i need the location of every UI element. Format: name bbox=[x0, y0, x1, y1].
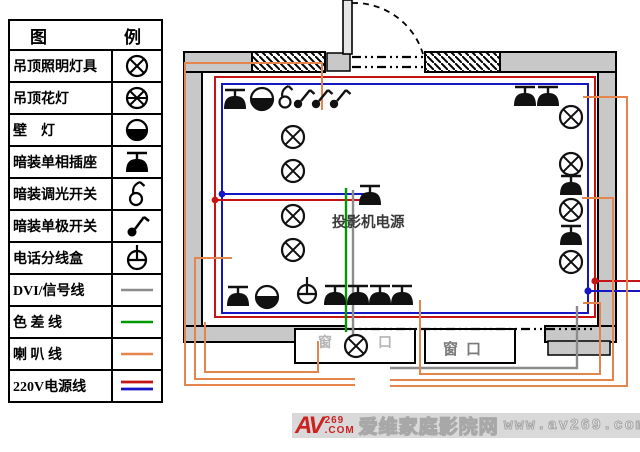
legend-row: 220V电源线 bbox=[10, 369, 161, 401]
legend-label: 暗装单极开关 bbox=[10, 211, 113, 241]
legend-label: DVI/信号线 bbox=[10, 275, 113, 305]
ceiling-lamp-icon bbox=[282, 160, 304, 182]
door-swing-arc bbox=[352, 3, 423, 54]
socket-icon bbox=[224, 90, 246, 109]
ceiling-lamp-icon bbox=[282, 205, 304, 227]
socket-icon bbox=[514, 87, 536, 106]
socket-icon bbox=[560, 176, 582, 195]
legend-row: 色 差 线 bbox=[10, 305, 161, 337]
ceiling-lamp-icon bbox=[113, 51, 161, 81]
wiring-diagram-page: 投影机电源 窗 口 窗口 图 例 吊顶照明灯具 吊顶花灯 壁 灯 暗装单相插座 bbox=[0, 0, 640, 452]
flush-dimmer-switch-icon bbox=[113, 179, 161, 209]
legend-label: 220V电源线 bbox=[10, 371, 113, 401]
watermark-site-url: www.av269.com bbox=[504, 417, 640, 434]
dimmer-switch-icon bbox=[280, 86, 293, 108]
legend-title-right: 例 bbox=[124, 23, 141, 48]
single-pole-switch-icon bbox=[330, 90, 351, 108]
socket-icon bbox=[347, 286, 369, 305]
watermark-logo-av: AV bbox=[295, 415, 323, 437]
wall-lamp-icon bbox=[256, 286, 278, 308]
left-window-char-left: 窗 bbox=[318, 334, 332, 351]
legend-label: 电话分线盒 bbox=[10, 243, 113, 273]
220v-power-line-swatch bbox=[113, 371, 161, 401]
watermark-logo-num: 269 bbox=[325, 416, 355, 426]
socket-icon bbox=[537, 87, 559, 106]
legend-row: 暗装单相插座 bbox=[10, 145, 161, 177]
projector-power-socket-icon bbox=[359, 186, 381, 205]
watermark-bar: AV 269 .COM 爱维家庭影院网 www.av269.com bbox=[292, 413, 640, 438]
legend-label: 壁 灯 bbox=[10, 115, 113, 145]
socket-icon bbox=[227, 287, 249, 306]
speaker-line-swatch bbox=[113, 339, 161, 369]
legend-row: DVI/信号线 bbox=[10, 273, 161, 305]
door-hinge-block bbox=[327, 53, 350, 71]
socket-icon bbox=[369, 286, 391, 305]
wall-lamp-icon bbox=[113, 115, 161, 145]
ceiling-lamp-icon bbox=[560, 153, 582, 175]
ceiling-lamp-icon bbox=[560, 199, 582, 221]
projector-power-label: 投影机电源 bbox=[332, 213, 405, 231]
legend-row: 吊顶照明灯具 bbox=[10, 49, 161, 81]
legend-title: 图 例 bbox=[10, 21, 161, 49]
socket-icon bbox=[324, 286, 346, 305]
legend-row: 暗装调光开关 bbox=[10, 177, 161, 209]
legend-row: 壁 灯 bbox=[10, 113, 161, 145]
legend-table: 图 例 吊顶照明灯具 吊顶花灯 壁 灯 暗装单相插座 暗装调光开关 bbox=[8, 19, 163, 403]
ceiling-lamp-icon bbox=[560, 251, 582, 273]
telephone-junction-box-icon bbox=[298, 277, 316, 303]
ceiling-lamp-icon bbox=[282, 239, 304, 261]
ceiling-lamp-icon bbox=[282, 126, 304, 148]
chandelier-icon bbox=[113, 83, 161, 113]
legend-label: 吊顶花灯 bbox=[10, 83, 113, 113]
legend-label: 暗装调光开关 bbox=[10, 179, 113, 209]
right-window-label: 窗口 bbox=[443, 340, 489, 358]
component-video-line-swatch bbox=[113, 307, 161, 337]
watermark-logo-com: .COM bbox=[325, 426, 355, 436]
ceiling-lamp-icon bbox=[560, 106, 582, 128]
telephone-junction-box-icon bbox=[113, 243, 161, 273]
wall-lamp-icon bbox=[251, 88, 273, 110]
legend-row: 电话分线盒 bbox=[10, 241, 161, 273]
watermark-logo-stack: 269 .COM bbox=[325, 416, 355, 436]
door-opening-dashdot bbox=[352, 57, 425, 67]
door-panel bbox=[343, 0, 352, 54]
left-window-char-right: 口 bbox=[378, 336, 392, 351]
legend-label: 吊顶照明灯具 bbox=[10, 51, 113, 81]
flush-single-phase-socket-icon bbox=[113, 147, 161, 177]
flush-single-pole-switch-icon bbox=[113, 211, 161, 241]
single-pole-switch-icon bbox=[294, 90, 315, 108]
dvi-signal-line-swatch bbox=[113, 275, 161, 305]
legend-label: 暗装单相插座 bbox=[10, 147, 113, 177]
socket-icon bbox=[391, 286, 413, 305]
window-bay-lamp-icon bbox=[345, 335, 367, 357]
legend-row: 喇 叭 线 bbox=[10, 337, 161, 369]
legend-label: 喇 叭 线 bbox=[10, 339, 113, 369]
watermark-site-name: 爱维家庭影院网 bbox=[359, 412, 499, 439]
legend-label: 色 差 线 bbox=[10, 307, 113, 337]
legend-row: 暗装单极开关 bbox=[10, 209, 161, 241]
socket-icon bbox=[560, 226, 582, 245]
top-wall-openings bbox=[252, 0, 500, 72]
legend-title-left: 图 bbox=[30, 23, 47, 48]
legend-row: 吊顶花灯 bbox=[10, 81, 161, 113]
